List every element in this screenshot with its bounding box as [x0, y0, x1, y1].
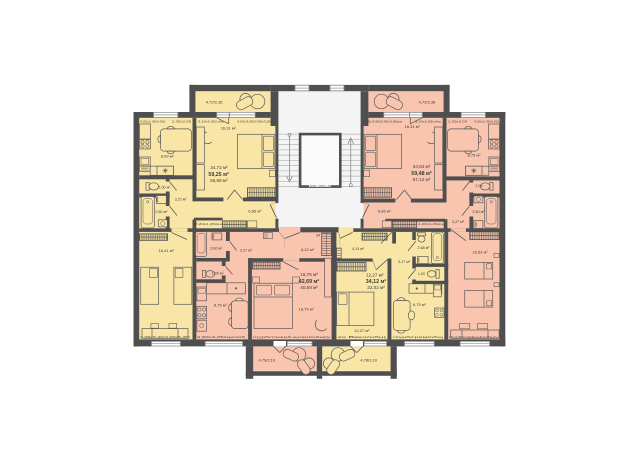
svg-text:4,05х2,36(4,00): 4,05х2,36(4,00) [140, 120, 165, 124]
svg-text:8,69 м²: 8,69 м² [161, 154, 175, 159]
svg-text:1,00: 1,00 [475, 184, 482, 188]
svg-text:57,12 м²: 57,12 м² [413, 177, 431, 182]
svg-text:2,30х2,05: 2,30х2,05 [172, 120, 192, 124]
svg-text:34,72 м²: 34,72 м² [210, 165, 228, 170]
svg-text:42,69 м²: 42,69 м² [299, 279, 320, 285]
svg-text:4,05х2,36(4,00): 4,05х2,36(4,00) [474, 120, 499, 124]
svg-text:3,10х2,05/обш: 3,10х2,05/обш [415, 120, 442, 124]
svg-text:34,84 м²: 34,84 м² [413, 164, 431, 169]
svg-text:4,13 м²: 4,13 м² [352, 247, 365, 251]
svg-text:59,25 м²: 59,25 м² [208, 172, 229, 178]
svg-text:3,22 м²: 3,22 м² [175, 198, 188, 202]
svg-text:1,00: 1,00 [418, 272, 425, 276]
svg-text:4,05х3,95(3,95х3,85)кв: 4,05х3,95(3,95х3,85)кв [237, 120, 277, 124]
svg-text:4,72/2,36: 4,72/2,36 [206, 100, 223, 105]
svg-text:2,68 м²: 2,68 м² [418, 246, 431, 250]
svg-text:1,00 м²: 1,00 м² [212, 272, 225, 276]
svg-text:6,75 м²: 6,75 м² [413, 302, 427, 307]
svg-text:8,75 м²: 8,75 м² [214, 303, 228, 308]
svg-text:4,78/2,10: 4,78/2,10 [360, 357, 377, 362]
svg-text:3,27 м²: 3,27 м² [398, 260, 411, 264]
svg-text:2,60 м²: 2,60 м² [155, 210, 168, 214]
svg-text:6,66 м²: 6,66 м² [248, 209, 262, 214]
svg-text:3,10х2,05/обш: 3,10х2,05/обш [198, 120, 225, 124]
svg-text:3,27 м²: 3,27 м² [452, 220, 465, 224]
svg-text:2,60 м²: 2,60 м² [210, 246, 223, 250]
svg-text:34,12 м²: 34,12 м² [366, 279, 387, 285]
svg-text:3,05х5,40(3,00х5,35): 3,05х5,40(3,00х5,35) [140, 335, 190, 339]
svg-text:п/урб/т/шкоб-купол/общ/у: п/урб/т/шкоб-купол/общ/у [253, 335, 331, 339]
svg-text:2,30х2,05: 2,30х2,05 [448, 120, 468, 124]
svg-text:18,75 м²: 18,75 м² [300, 272, 318, 277]
svg-text:2,60х3,05/щит/об: 2,60х3,05/щит/об [197, 335, 246, 339]
svg-text:б/урб/сумkoob/общ/у: б/урб/сумkoob/общ/у [449, 335, 499, 339]
svg-text:16,31 м²: 16,31 м² [405, 124, 421, 129]
svg-text:кх.Вккл/общ: кх.Вккл/общ [338, 335, 388, 339]
svg-text:4,79/2,10: 4,79/2,10 [258, 357, 275, 362]
svg-text:12,27 м²: 12,27 м² [366, 273, 384, 278]
svg-text:16,53 м²: 16,53 м² [472, 249, 488, 254]
svg-text:п/урб/грим/общ: п/урб/грим/общ [393, 335, 445, 339]
svg-text:2,60 м²: 2,60 м² [472, 210, 485, 214]
svg-text:6,66 м²: 6,66 м² [378, 209, 392, 214]
svg-text:2,20х1,45/кш: 2,20х1,45/кш [195, 222, 223, 226]
svg-text:40,59 м²: 40,59 м² [300, 285, 318, 290]
svg-text:16,31 м²: 16,31 м² [221, 126, 237, 131]
svg-text:4,72/2,36: 4,72/2,36 [419, 100, 436, 105]
svg-text:8,75 м²: 8,75 м² [468, 153, 482, 158]
svg-text:3,27 м²: 3,27 м² [240, 248, 253, 252]
svg-text:32,02 м²: 32,02 м² [367, 285, 385, 290]
svg-text:59,48 м²: 59,48 м² [411, 171, 432, 177]
svg-text:4,05х3,95(3,95х3,85)кв: 4,05х3,95(3,95х3,85)кв [363, 120, 403, 124]
svg-text:12,27 м²: 12,27 м² [354, 328, 370, 333]
svg-text:16,41 м²: 16,41 м² [159, 248, 175, 253]
svg-text:2,20х1,45/кш: 2,20х1,45/кш [418, 222, 445, 226]
svg-text:18,75 м²: 18,75 м² [299, 307, 315, 312]
svg-text:56,89 м²: 56,89 м² [210, 178, 228, 183]
svg-text:34: 34 [316, 234, 320, 238]
svg-text:1,00 м²: 1,00 м² [158, 185, 171, 189]
svg-text:6,22 м²: 6,22 м² [301, 247, 315, 252]
